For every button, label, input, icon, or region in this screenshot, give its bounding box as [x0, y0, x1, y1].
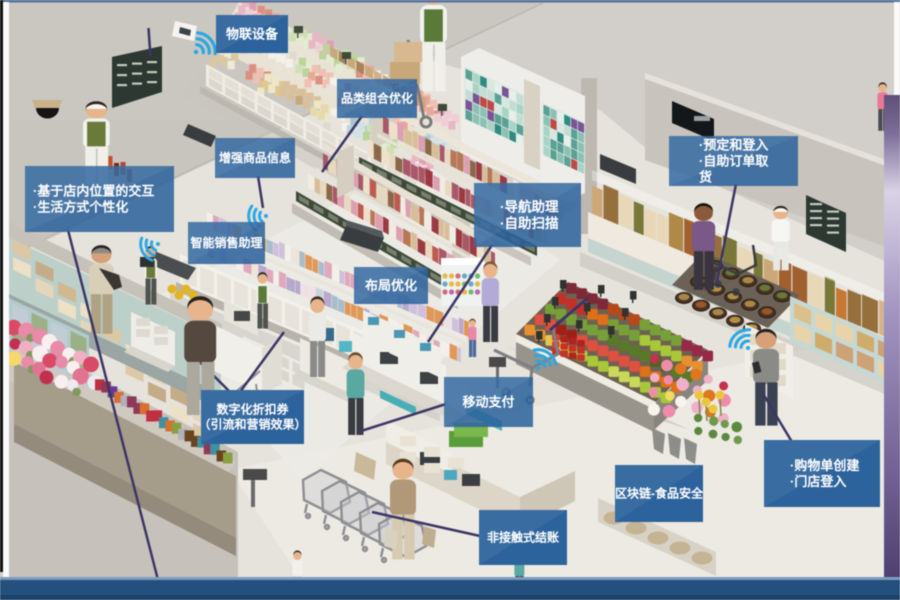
svg-text:移动支付: 移动支付: [462, 395, 514, 410]
svg-text:·生活方式个性化: ·生活方式个性化: [33, 200, 128, 215]
svg-text:智能销售助理: 智能销售助理: [189, 235, 262, 250]
svg-text:·预定和登入: ·预定和登入: [699, 138, 768, 153]
svg-text:货: 货: [699, 170, 712, 185]
svg-text:非接触式结账: 非接触式结账: [487, 530, 559, 545]
svg-text:·基于店内位置的交互: ·基于店内位置的交互: [33, 184, 154, 199]
svg-text:·门店登入: ·门店登入: [790, 474, 846, 489]
svg-text:·自助订单取: ·自助订单取: [699, 154, 769, 169]
svg-text:布局优化: 布局优化: [365, 278, 417, 293]
svg-text:品类组合优化: 品类组合优化: [341, 91, 413, 106]
svg-text:增强商品信息: 增强商品信息: [219, 150, 291, 165]
svg-text:（引流和营销效果）: （引流和营销效果）: [198, 417, 306, 432]
svg-text:·购物单创建: ·购物单创建: [790, 458, 859, 473]
svg-text:区块链-食品安全: 区块链-食品安全: [615, 486, 704, 501]
svg-text:·自助扫描: ·自助扫描: [500, 215, 559, 231]
svg-text:·导航助理: ·导航助理: [500, 199, 559, 215]
svg-text:物联设备: 物联设备: [226, 27, 279, 42]
svg-text:数字化折扣券: 数字化折扣券: [216, 402, 289, 417]
